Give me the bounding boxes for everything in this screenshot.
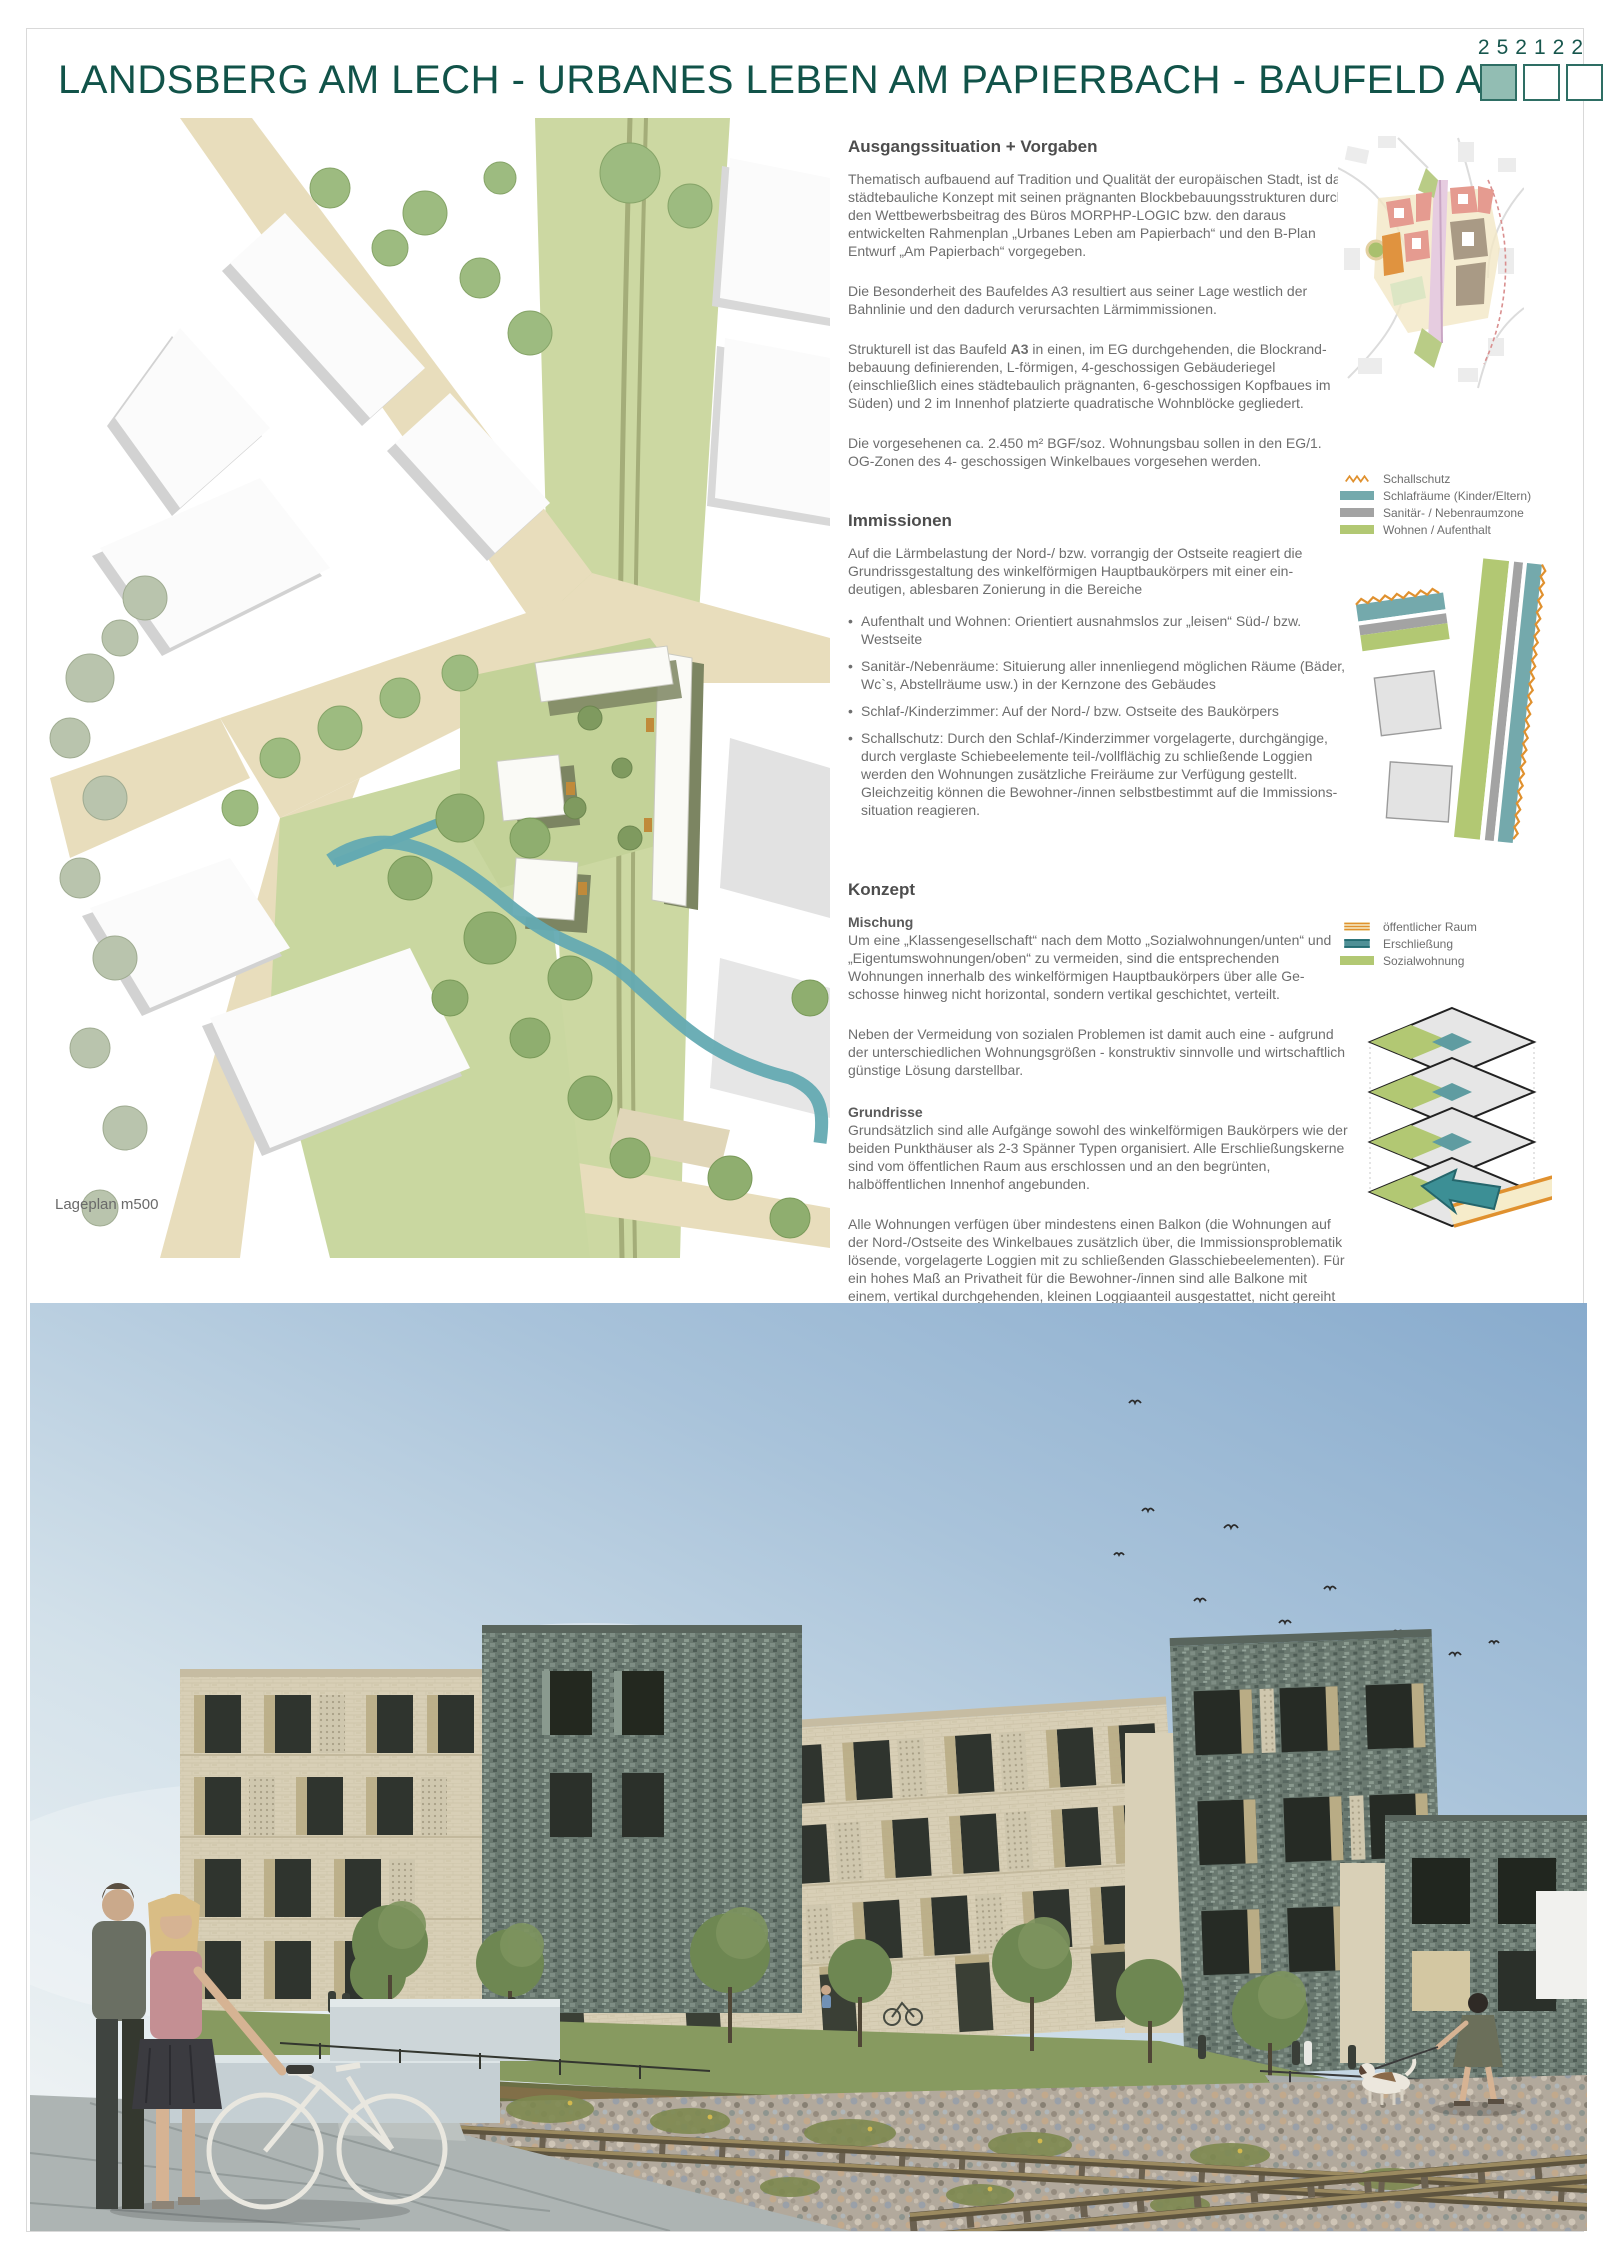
section-ausgangssituation: Ausgangssituation + Vorgaben Thematisch … bbox=[848, 138, 1348, 470]
location-masterplan-map bbox=[1338, 128, 1524, 400]
legend-label: Sozialwohnung bbox=[1383, 954, 1464, 968]
paragraph: Grundsätzlich sind alle Aufgänge sowohl … bbox=[848, 1121, 1348, 1193]
legend-label: Schlafräume (Kinder/Eltern) bbox=[1383, 489, 1531, 503]
legend-konzept: öffentlicher Raum Erschließung Sozialwoh… bbox=[1340, 918, 1580, 969]
color-swatch-icon bbox=[1340, 508, 1374, 517]
building-white-sliver bbox=[1536, 1891, 1587, 1999]
zigzag-icon bbox=[1340, 474, 1374, 483]
subsection-label: Grundrisse bbox=[848, 1103, 1348, 1121]
text-column: Ausgangssituation + Vorgaben Thematisch … bbox=[848, 138, 1348, 1401]
site-plan-map bbox=[30, 118, 830, 1258]
title-square-outline-icon bbox=[1523, 64, 1560, 101]
legend-row: Erschließung bbox=[1340, 935, 1580, 952]
subsection-label: Mischung bbox=[848, 913, 1348, 931]
legend-row: Wohnen / Aufenthalt bbox=[1340, 521, 1580, 538]
legend-label: Wohnen / Aufenthalt bbox=[1383, 523, 1491, 537]
legend-label: Sanitär- / Nebenraumzone bbox=[1383, 506, 1524, 520]
siteplan-caption: Lageplan m500 bbox=[55, 1196, 158, 1213]
courtyard-block bbox=[1374, 671, 1441, 736]
entry-number: 252122 bbox=[1478, 36, 1590, 60]
legend-row: Schlafräume (Kinder/Eltern) bbox=[1340, 487, 1580, 504]
paragraph: Die vorgesehenen ca. 2.450 m² BGF/soz. W… bbox=[848, 434, 1348, 470]
legend-row: Sanitär- / Nebenraumzone bbox=[1340, 504, 1580, 521]
legend-row: öffentlicher Raum bbox=[1340, 918, 1580, 935]
legend-immissionen: Schallschutz Schlafräume (Kinder/Eltern)… bbox=[1340, 470, 1580, 538]
paragraph: Thematisch aufbauend auf Tradition und Q… bbox=[848, 170, 1348, 260]
bike-saddle bbox=[286, 2065, 314, 2074]
zoning-top-bar bbox=[1355, 588, 1449, 652]
bullet-item: Sanitär-/Nebenräume: Situierung aller in… bbox=[848, 657, 1348, 693]
legend-row: Sozialwohnung bbox=[1340, 952, 1580, 969]
poster-landsberg-baufeld-a3: { "page": { "number": "252122", "title":… bbox=[0, 0, 1612, 2261]
paragraph: Um eine „Klassengesellschaft“ nach dem M… bbox=[848, 931, 1348, 1003]
section-heading: Ausgangssituation + Vorgaben bbox=[848, 138, 1348, 156]
title-square-filled-icon bbox=[1480, 64, 1517, 101]
bullet-item: Schallschutz: Durch den Schlaf-/Kinderzi… bbox=[848, 729, 1348, 819]
bullet-item: Aufenthalt und Wohnen: Orientiert ausnah… bbox=[848, 612, 1348, 648]
color-swatch-icon bbox=[1340, 525, 1374, 534]
zoning-long-bar bbox=[1454, 558, 1546, 843]
zoning-diagram bbox=[1350, 556, 1560, 856]
bar-icon bbox=[1340, 939, 1374, 948]
legend-label: Erschließung bbox=[1383, 937, 1453, 951]
vertical-mix-diagram bbox=[1352, 1000, 1552, 1235]
building-left-cream bbox=[180, 1669, 482, 2011]
section-heading: Konzept bbox=[848, 881, 1348, 899]
section-heading: Immissionen bbox=[848, 512, 1348, 530]
page-title: LANDSBERG AM LECH - URBANES LEBEN AM PAP… bbox=[58, 58, 1505, 103]
architectural-rendering bbox=[30, 1303, 1587, 2231]
legend-row: Schallschutz bbox=[1340, 470, 1580, 487]
striped-bar-icon bbox=[1340, 922, 1374, 931]
section-immissionen: Immissionen Auf die Lärmbelastung der No… bbox=[848, 512, 1348, 819]
bullet-item: Schlaf-/Kinderzimmer: Auf der Nord-/ bzw… bbox=[848, 702, 1348, 720]
section-konzept: Konzept Mischung Um eine „Klassengesells… bbox=[848, 881, 1348, 1359]
color-swatch-icon bbox=[1340, 491, 1374, 500]
title-square-outline-icon bbox=[1566, 64, 1603, 101]
color-swatch-icon bbox=[1340, 956, 1374, 965]
paragraph: Neben der Vermeidung von sozialen Proble… bbox=[848, 1025, 1348, 1079]
legend-label: Schallschutz bbox=[1383, 472, 1450, 486]
paragraph: Die Besonderheit des Baufeldes A3 result… bbox=[848, 282, 1348, 318]
paragraph: Auf die Lärmbelastung der Nord-/ bzw. vo… bbox=[848, 544, 1348, 598]
courtyard-block bbox=[1386, 762, 1452, 822]
paragraph: Strukturell ist das Baufeld A3 in einen,… bbox=[848, 340, 1348, 412]
legend-label: öffentlicher Raum bbox=[1383, 920, 1477, 934]
